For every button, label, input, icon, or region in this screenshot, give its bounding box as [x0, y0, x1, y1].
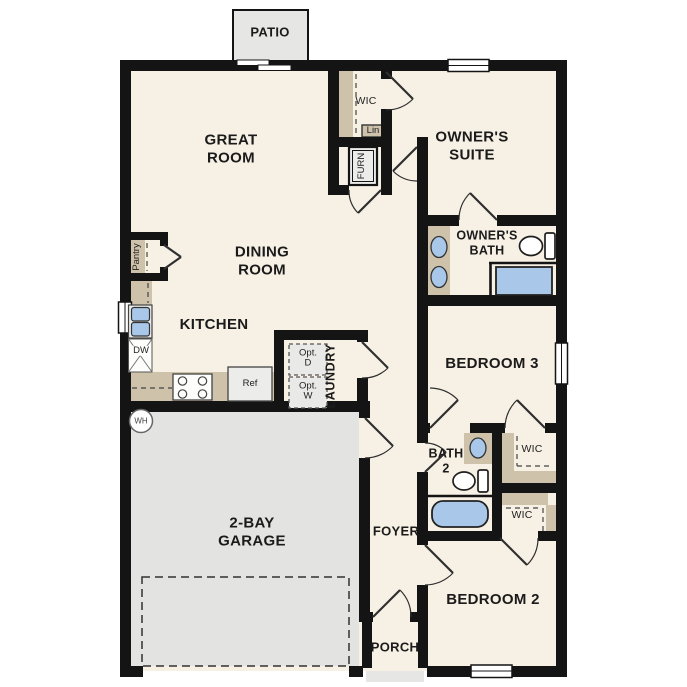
room-label-bedroom2: BEDROOM 2	[446, 591, 540, 609]
burner	[178, 377, 186, 385]
room-label-owners-suite: OWNER'S SUITE	[435, 128, 508, 163]
wic-b3-shelf-bottom	[514, 471, 556, 483]
room-label-bath2: BATH 2	[429, 446, 464, 476]
bath2-toilet-tank	[478, 470, 488, 492]
wic-b2-shelf-top	[502, 493, 548, 505]
room-label-garage: 2-BAY GARAGE	[218, 514, 286, 549]
room-label-porch: PORCH	[371, 639, 419, 654]
owners-bath-sink2	[431, 267, 447, 288]
room-label-wic-bedroom3: WIC	[521, 443, 542, 455]
wic-b3-shelf-left	[502, 433, 514, 483]
burner	[198, 390, 206, 398]
room-label-bedroom3: BEDROOM 3	[445, 355, 539, 373]
fixture-label-optional-dryer: Opt. D	[299, 349, 317, 370]
bath2-tub	[432, 501, 488, 527]
room-label-great-room: GREAT ROOM	[205, 131, 258, 166]
room-label-pantry: Pantry	[132, 243, 142, 270]
room-label-laundry: LAUNDRY	[324, 344, 339, 409]
bath2-sink	[470, 438, 486, 458]
room-label-owners-bath: OWNER'S BATH	[456, 228, 517, 258]
wic-owner-shelf	[339, 71, 353, 137]
fixture-label-furnace: FURN	[357, 153, 367, 179]
room-label-kitchen: KITCHEN	[180, 316, 249, 334]
room-label-dining-room: DINING ROOM	[235, 243, 289, 278]
fixture-label-optional-washer: Opt. W	[299, 382, 317, 403]
floor-plan: PATIO GREAT ROOM WIC Lin FURN OWNER'S SU…	[0, 0, 687, 687]
burner	[178, 390, 186, 398]
room-label-patio: PATIO	[250, 24, 289, 39]
owners-bath-sink1	[431, 237, 447, 258]
fixture-label-water-heater: WH	[134, 416, 147, 425]
room-label-wic-owner: WIC	[355, 95, 376, 107]
kitchen-sink-basin2	[132, 323, 150, 337]
owners-toilet-tank	[545, 233, 555, 259]
room-label-foyer: FOYER	[373, 523, 419, 538]
burner	[198, 377, 206, 385]
fixture-label-refrigerator: Ref	[243, 379, 258, 389]
floor-plan-drawing	[0, 0, 687, 687]
fixture-label-dishwasher: DW	[132, 346, 150, 356]
owners-toilet-bowl	[520, 237, 543, 256]
owners-tub	[496, 267, 552, 295]
room-label-wic-bedroom2: WIC	[511, 509, 532, 521]
kitchen-sink-basin1	[132, 308, 150, 322]
fixture-label-linen: Lin	[367, 126, 380, 136]
patio-slider-panel2	[258, 65, 291, 71]
